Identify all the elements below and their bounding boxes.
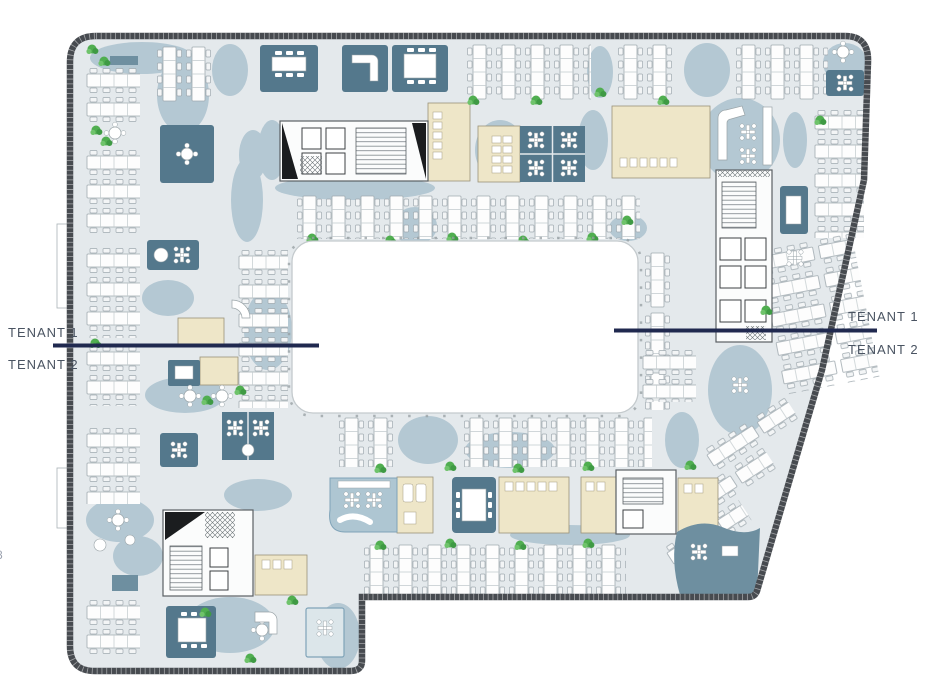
desk-cluster bbox=[84, 598, 140, 654]
edge-text-fragment: 8 bbox=[0, 548, 3, 562]
counter bbox=[338, 481, 390, 488]
stairs bbox=[356, 128, 406, 174]
desk-cluster bbox=[362, 542, 626, 596]
tenant1-label-right: TENANT 1 bbox=[848, 309, 919, 324]
tenant2-label-left: TENANT 2 bbox=[8, 357, 79, 372]
meeting-pod bbox=[826, 70, 864, 96]
desk-cluster bbox=[295, 193, 640, 239]
desk-cluster bbox=[84, 66, 140, 124]
desk-cluster bbox=[640, 348, 696, 402]
meeting-room bbox=[260, 45, 318, 92]
core-bottom-mid bbox=[616, 470, 676, 534]
meeting-pod-quad bbox=[520, 126, 585, 182]
desk-cluster bbox=[734, 42, 828, 100]
desk-cluster bbox=[462, 415, 652, 467]
meeting-room-lounge bbox=[342, 45, 388, 92]
amenity-room bbox=[178, 318, 224, 345]
stairs bbox=[722, 182, 756, 228]
meeting-room bbox=[392, 45, 448, 92]
desk-cluster bbox=[84, 426, 140, 504]
desk-cluster bbox=[155, 44, 215, 102]
core-right bbox=[716, 170, 772, 342]
core-bottom-left bbox=[163, 510, 253, 596]
tenant1-label-left: TENANT 1 bbox=[8, 325, 79, 340]
floor-plan-page: TENANT 1 TENANT 2 TENANT 1 TENANT 2 8 bbox=[0, 0, 931, 688]
desk-cluster bbox=[236, 248, 288, 408]
meeting-pod bbox=[168, 360, 200, 386]
pantry bbox=[397, 477, 433, 533]
desk-cluster bbox=[616, 42, 674, 100]
meeting-pod bbox=[147, 240, 199, 270]
stairs bbox=[623, 478, 663, 504]
lounge-room bbox=[330, 478, 397, 532]
desk-cluster bbox=[465, 42, 591, 100]
meeting-room bbox=[452, 477, 496, 533]
meeting-room bbox=[160, 125, 214, 183]
amenity-room bbox=[200, 357, 238, 385]
meeting-pod bbox=[160, 433, 198, 467]
locker-bench bbox=[110, 56, 138, 65]
core-top bbox=[280, 121, 428, 181]
focus-lounge bbox=[674, 523, 760, 595]
shelf bbox=[763, 107, 772, 165]
locker-room bbox=[478, 126, 520, 182]
meeting-room-glass bbox=[306, 608, 344, 657]
meeting-pod-quad bbox=[222, 412, 274, 460]
desk-cluster bbox=[84, 344, 140, 406]
desk-cluster bbox=[337, 415, 397, 467]
tenant2-label-right: TENANT 2 bbox=[848, 342, 919, 357]
kitchen-counter bbox=[112, 575, 138, 591]
desk-cluster bbox=[84, 148, 140, 236]
desk-cluster bbox=[84, 246, 140, 338]
floor-plan-svg: TENANT 1 TENANT 2 TENANT 1 TENANT 2 8 bbox=[0, 0, 931, 688]
meeting-pod bbox=[780, 186, 808, 234]
atrium-void bbox=[289, 238, 641, 416]
stairs bbox=[170, 546, 202, 590]
